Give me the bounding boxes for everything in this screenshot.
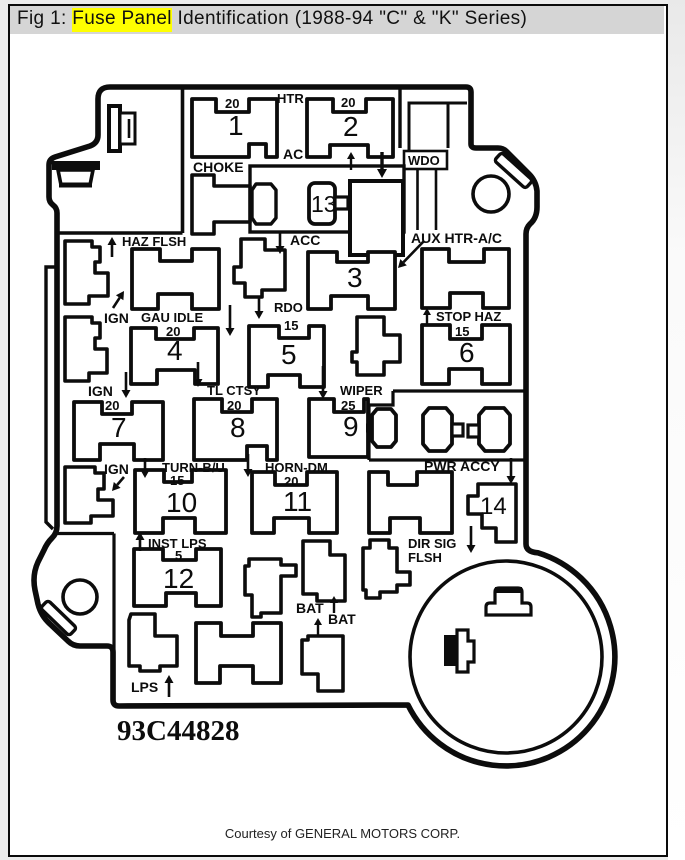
svg-text:BAT: BAT [296, 600, 324, 616]
svg-text:CHOKE: CHOKE [193, 159, 244, 175]
svg-text:1: 1 [228, 110, 244, 141]
svg-text:14: 14 [480, 493, 507, 520]
svg-text:LPS: LPS [131, 679, 158, 695]
svg-text:ACC: ACC [290, 232, 320, 248]
svg-text:IGN: IGN [88, 383, 113, 399]
svg-text:WDO: WDO [408, 153, 440, 168]
svg-text:5: 5 [281, 339, 297, 370]
svg-text:IGN: IGN [104, 461, 129, 477]
svg-text:6: 6 [459, 337, 475, 368]
svg-text:AC: AC [283, 146, 303, 162]
svg-text:10: 10 [166, 487, 197, 518]
svg-text:HAZ FLSH: HAZ FLSH [122, 234, 186, 249]
svg-text:5: 5 [175, 548, 182, 563]
svg-text:15: 15 [284, 318, 298, 333]
svg-text:7: 7 [111, 412, 127, 443]
svg-text:RDO: RDO [274, 300, 303, 315]
svg-text:93C44828: 93C44828 [117, 715, 239, 747]
svg-text:15: 15 [170, 473, 184, 488]
svg-text:8: 8 [230, 412, 246, 443]
svg-text:PWR ACCY: PWR ACCY [424, 458, 500, 474]
svg-text:20: 20 [341, 95, 355, 110]
svg-text:IGN: IGN [104, 310, 129, 326]
svg-text:9: 9 [343, 411, 359, 442]
svg-text:2: 2 [343, 111, 359, 142]
svg-text:BAT: BAT [328, 611, 356, 627]
svg-text:STOP HAZ: STOP HAZ [436, 309, 501, 324]
svg-text:TL CTSY: TL CTSY [207, 383, 261, 398]
svg-text:GAU IDLE: GAU IDLE [141, 310, 203, 325]
svg-text:20: 20 [225, 96, 239, 111]
svg-text:HORN-DM: HORN-DM [265, 460, 328, 475]
svg-text:11: 11 [283, 486, 312, 517]
svg-text:AUX HTR-A/C: AUX HTR-A/C [411, 230, 502, 246]
svg-text:20: 20 [227, 398, 241, 413]
svg-text:3: 3 [347, 262, 363, 293]
svg-text:WIPER: WIPER [340, 383, 383, 398]
svg-text:4: 4 [167, 335, 183, 366]
svg-text:FLSH: FLSH [408, 550, 442, 565]
svg-text:13: 13 [311, 191, 337, 217]
svg-text:DIR SIG: DIR SIG [408, 536, 456, 551]
svg-text:12: 12 [163, 563, 194, 594]
svg-text:20: 20 [105, 398, 119, 413]
svg-text:HTR: HTR [277, 91, 304, 106]
